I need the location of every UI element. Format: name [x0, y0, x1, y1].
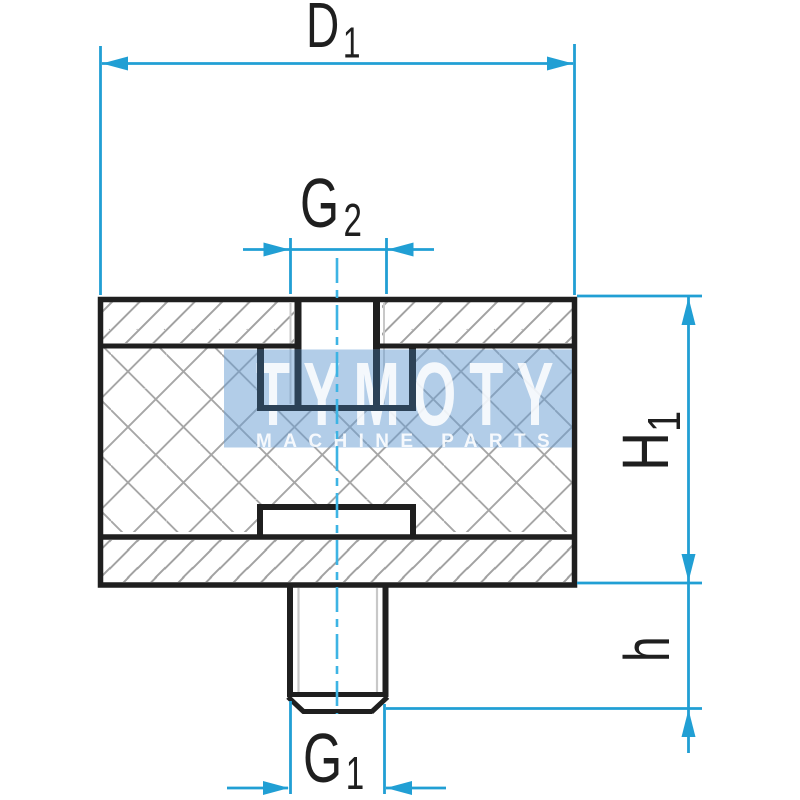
svg-text:h: h [612, 636, 683, 662]
svg-text:MACHINE PARTS: MACHINE PARTS [256, 431, 561, 452]
